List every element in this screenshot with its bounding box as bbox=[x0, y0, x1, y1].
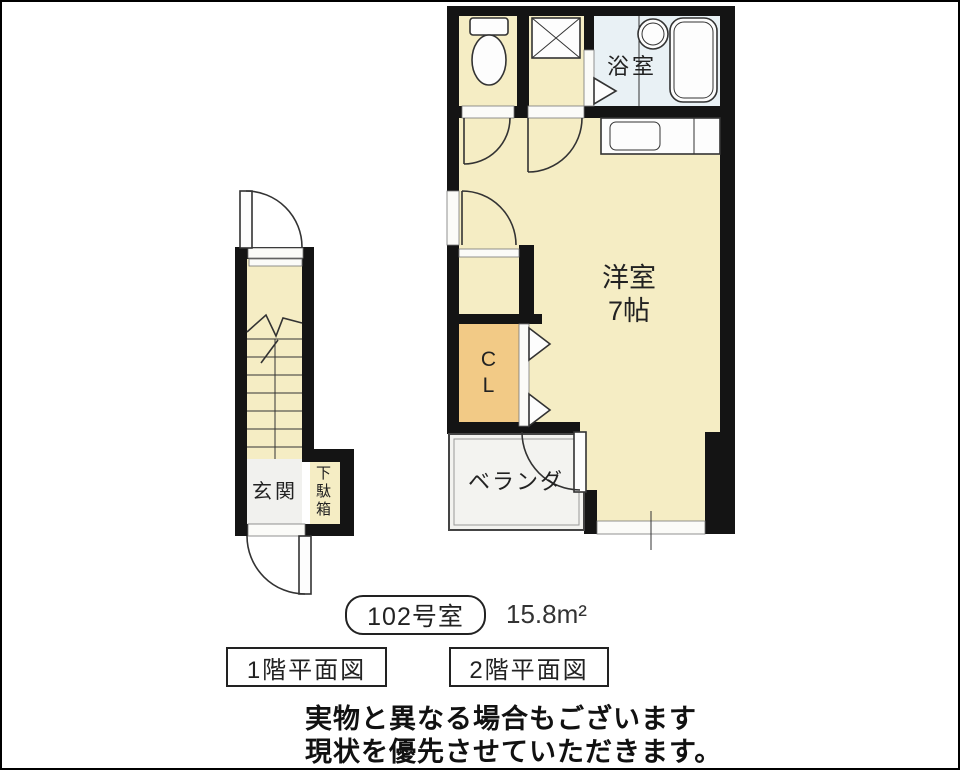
western-room-name: 洋室 bbox=[585, 262, 673, 295]
bath-door-opening bbox=[584, 50, 594, 106]
washbasin-icon bbox=[638, 19, 668, 49]
kitchen-counter bbox=[601, 118, 720, 154]
western-room-size: 7帖 bbox=[585, 295, 673, 328]
washer-pan-icon bbox=[532, 18, 580, 58]
room-number-badge: 102号室 bbox=[345, 595, 486, 635]
upper-door-opening bbox=[248, 248, 303, 258]
entrance-door-opening bbox=[248, 524, 305, 536]
closet-door-track bbox=[519, 324, 529, 426]
floor1-caption: 1階平面図 bbox=[226, 647, 387, 687]
western-room-label: 洋室 7帖 bbox=[585, 262, 673, 328]
entrance-label: 玄関 bbox=[248, 475, 302, 504]
disclaimer-line2: 現状を優先させていただきます。 bbox=[305, 736, 722, 769]
disclaimer-line1: 実物と異なる場合もございます bbox=[305, 703, 722, 736]
stair-door-opening bbox=[447, 191, 459, 245]
floor1-upper-door bbox=[240, 191, 302, 248]
bathtub-icon bbox=[670, 18, 717, 102]
floor2-caption: 2階平面図 bbox=[449, 647, 609, 687]
disclaimer: 実物と異なる場合もございます 現状を優先させていただきます。 bbox=[305, 703, 722, 769]
bathroom-label: 浴室 bbox=[600, 49, 664, 81]
toilet-icon bbox=[470, 18, 508, 85]
floor1-plan bbox=[235, 191, 354, 594]
floor1-entrance-door bbox=[247, 536, 311, 594]
closet-label: CL bbox=[478, 347, 499, 398]
veranda-label: ベランダ bbox=[460, 464, 572, 496]
upper-threshold bbox=[249, 259, 302, 266]
stair-landing-sill bbox=[459, 249, 519, 257]
area-value: 15.8m² bbox=[506, 599, 587, 630]
shoe-cabinet-label: 下駄箱 bbox=[316, 465, 333, 519]
laundry-door-opening bbox=[528, 106, 584, 118]
floorplan-page: 浴室 洋室 7帖 CL ベランダ 玄関 下駄箱 102号室 15.8m² 1階平… bbox=[0, 0, 960, 770]
toilet-door-opening bbox=[462, 106, 514, 118]
